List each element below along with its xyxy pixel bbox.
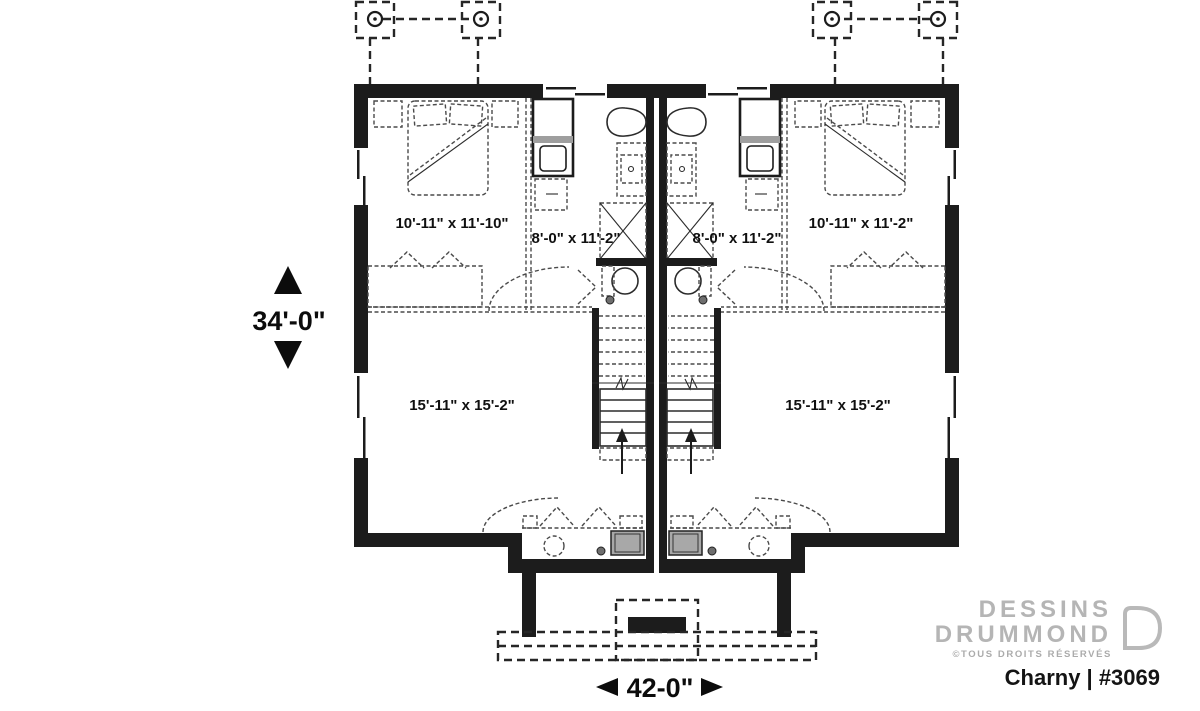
door-swing-arc [483,498,559,532]
arrow-up-icon [274,266,302,294]
dashed-partition [526,98,531,311]
brand-name-line1: DESSINS [935,597,1112,622]
stairs [592,308,654,474]
width-dimension: 42-0" [596,673,723,703]
toilet [607,108,646,136]
unit-half [354,2,655,637]
floor-drain [606,296,614,304]
stair-direction-arrow [616,428,628,474]
water-heater [544,536,564,556]
nightstand [374,101,402,127]
brand-name-line2: DRUMMOND [935,622,1112,647]
height-dimension: 34'-0" [252,266,325,369]
plan-id: Charny | #3069 [935,665,1166,691]
concrete-step [628,617,686,633]
utility-cabinet [535,179,567,210]
unit-half-mirrored [658,2,959,637]
dashed-partition [368,307,592,312]
room-label-bedroom-right: 10'-11" x 11'-2" [809,215,914,232]
mechanical-room [483,498,645,556]
window [354,373,368,459]
toilet [602,266,638,296]
width-dimension-label: 42-0" [627,673,694,703]
door-swing-chevron [578,270,596,304]
washer-dryer-stack [533,99,573,176]
window [543,84,607,98]
room-label-family-right: 15'-11" x 15'-2" [785,397,891,414]
walls [354,84,655,637]
arrow-left-icon [596,678,618,696]
arrow-right-icon [701,678,723,696]
bed [408,101,488,195]
appliance [611,531,644,555]
door-swing-arc [489,267,569,311]
drummond-logo-icon [1120,602,1166,656]
nightstand [492,101,518,127]
vanity-sink [617,143,646,196]
brand-rights-notice: ©TOUS DROITS RÉSERVÉS [935,649,1112,660]
room-label-bath-left: 8'-0" x 11'-2" [532,230,621,247]
floor-plan-page: 10'-11" x 11'-10" 8'-0" x 11'-2" 8'-0" x… [0,0,1200,711]
floor-drain [597,547,605,555]
room-label-family-left: 15'-11" x 15'-2" [409,397,515,414]
height-dimension-label: 34'-0" [252,306,325,336]
porch-posts [356,2,500,84]
room-label-bedroom-left: 10'-11" x 11'-10" [395,215,508,232]
brand-block: DESSINS DRUMMOND ©TOUS DROITS RÉSERVÉS C… [935,597,1166,691]
room-label-bath-right: 8'-0" x 11'-2" [693,230,782,247]
arrow-down-icon [274,341,302,369]
closet [368,252,482,307]
window [354,148,368,205]
